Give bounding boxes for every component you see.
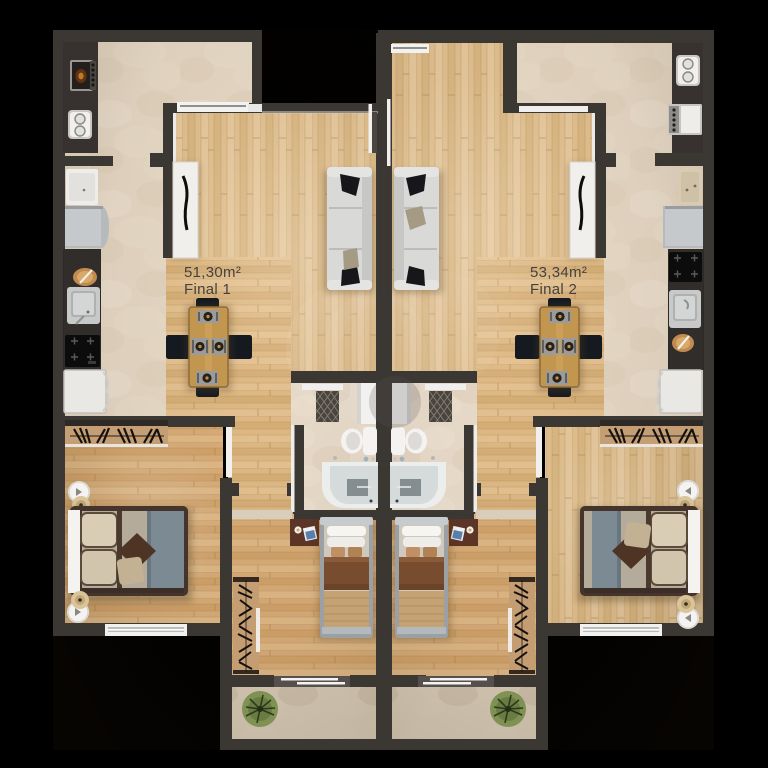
svg-text:Final 2: Final 2 <box>530 281 577 298</box>
svg-text:51,30m²: 51,30m² <box>184 264 241 281</box>
svg-text:53,34m²: 53,34m² <box>530 264 587 281</box>
svg-text:Final 1: Final 1 <box>184 281 231 298</box>
